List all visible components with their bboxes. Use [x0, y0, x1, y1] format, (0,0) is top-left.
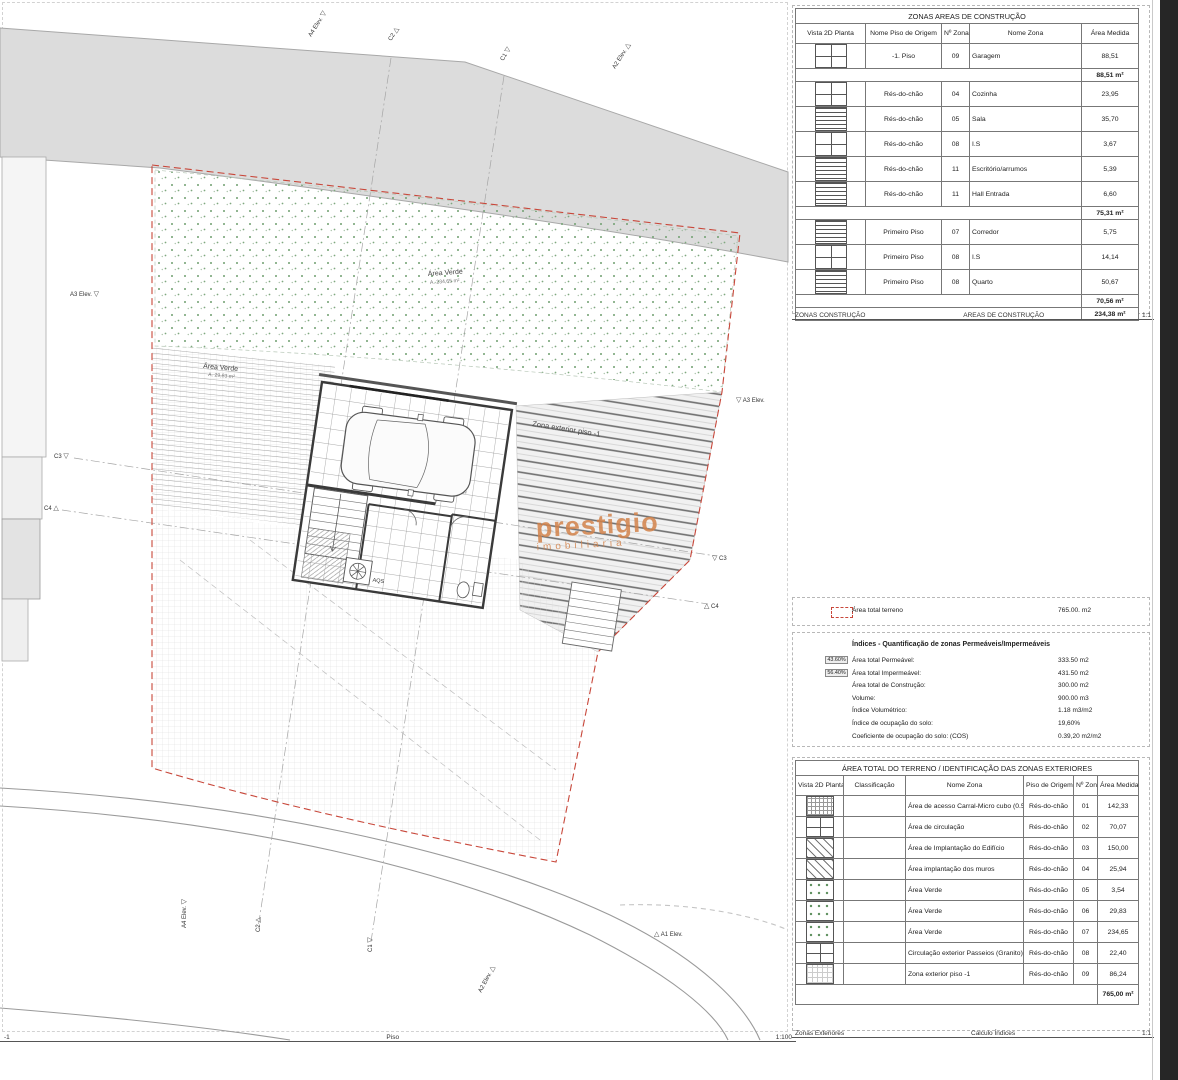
- zone-row: Área de Implantação do EdifícioRés-do-ch…: [796, 838, 1139, 859]
- building-plan: AQS Garagem A. 88,51 m²: [289, 374, 517, 608]
- hatch-swatch: [806, 943, 834, 963]
- hatch-swatch: [815, 220, 847, 244]
- exterior-footer-scale: 1:1: [1142, 1030, 1151, 1037]
- zone-row: Primeiro Piso08Quarto50,67: [796, 270, 1139, 295]
- drawing-footer-scale: 1:100: [776, 1034, 792, 1041]
- column-header: Nome Zona: [970, 24, 1082, 44]
- hatch-swatch: [815, 82, 847, 106]
- zone-row: Rés-do-chão11Hall Entrada6,60: [796, 182, 1139, 207]
- zone-row: Primeiro Piso07Corredor5,75: [796, 220, 1139, 245]
- index-row: Índice Volumétrico:1.18 m3/m2: [793, 705, 1149, 718]
- index-label: Área total Impermeável:: [852, 670, 921, 677]
- zone-row: Área de acesso Carral-Micro cubo (0.5x0.…: [796, 796, 1139, 817]
- hatch-swatch: [806, 796, 834, 816]
- terreno-box: Área total terreno 765.00. m2: [792, 597, 1150, 626]
- zone-row: Zona exterior piso -1Rés-do-chão0986,24: [796, 964, 1139, 985]
- column-header: Nome Piso de Origem: [866, 24, 942, 44]
- index-value: 19,60%: [1058, 720, 1080, 727]
- site-plan-area: AQS Garagem A. 88,51 m² Área Verde: [0, 0, 790, 1080]
- zone-row: Primeiro Piso08I.S14,14: [796, 245, 1139, 270]
- zone-row: Rés-do-chão04Cozinha23,95: [796, 82, 1139, 107]
- watermark-line1: prestigio: [535, 509, 659, 542]
- drawing-footer: -1 Piso 1:100: [0, 1030, 796, 1042]
- zone-row: Área VerdeRés-do-chão053,54: [796, 880, 1139, 901]
- subtotal-row: 75,31 m²: [796, 207, 1139, 220]
- column-header: Área Medida: [1082, 24, 1139, 44]
- hatch-swatch: [815, 270, 847, 294]
- hatch-swatch: [815, 44, 847, 68]
- hatch-swatch: [806, 880, 834, 900]
- drawing-footer-center: Piso: [386, 1034, 399, 1041]
- indices-rows: 43.60%Área total Permeável:333.50 m256.4…: [793, 655, 1149, 743]
- index-label: Coeficiente de ocupação do solo: (COS): [852, 733, 968, 740]
- car-icon: [338, 404, 478, 504]
- exterior-table-title: ÁREA TOTAL DO TERRENO / IDENTIFICAÇÃO DA…: [796, 761, 1139, 776]
- column-header: Classificação: [844, 776, 906, 796]
- terreno-legend-icon: [831, 607, 853, 618]
- construction-table-header: Vista 2D PlantaNome Piso de OrigemNº Zon…: [796, 24, 1139, 44]
- zone-row: Rés-do-chão11Escritório/arrumos5,39: [796, 157, 1139, 182]
- drawing-sheet: AQS Garagem A. 88,51 m² Área Verde: [0, 0, 1178, 1080]
- index-label: Área total de Construção:: [852, 682, 926, 689]
- terreno-value: 765.00. m2: [1058, 607, 1091, 614]
- index-row: Coeficiente de ocupação do solo: (COS)0.…: [793, 731, 1149, 744]
- watermark: prestigio imobiliaria: [535, 509, 660, 553]
- terreno-label: Área total terreno: [852, 607, 903, 614]
- percent-badge: 56.40%: [825, 669, 848, 677]
- subtotal-row: 88,51 m²: [796, 69, 1139, 82]
- zone-row: Rés-do-chão08I.S3,67: [796, 132, 1139, 157]
- subtotal-row: 70,56 m²: [796, 295, 1139, 308]
- zone-row: Área VerdeRés-do-chão0629,83: [796, 901, 1139, 922]
- hatch-swatch: [815, 157, 847, 181]
- total-row: 765,00 m²: [796, 985, 1139, 1005]
- indices-title: Índices - Quantificação de zonas Permeáv…: [852, 641, 1050, 648]
- zone-row: Rés-do-chão05Sala35,70: [796, 107, 1139, 132]
- index-row: Área total de Construção:300.00 m2: [793, 680, 1149, 693]
- hatch-swatch: [806, 838, 834, 858]
- hatch-swatch: [806, 922, 834, 942]
- column-header: Área Medida: [1098, 776, 1139, 796]
- hatch-swatch: [815, 107, 847, 131]
- index-label: Índice Volumétrico:: [852, 707, 907, 714]
- column-header: Nome Zona: [906, 776, 1024, 796]
- index-label: Índice de ocupação do solo:: [852, 720, 933, 727]
- index-value: 0.39,20 m2/m2: [1058, 733, 1101, 740]
- exterior-sheet-footer: Zonas Exteriores Calculo Índices 1:1: [792, 1026, 1154, 1038]
- viewer-edge-strip: [1160, 0, 1178, 1080]
- hatch-swatch: [815, 245, 847, 269]
- index-value: 1.18 m3/m2: [1058, 707, 1092, 714]
- construction-table-title: ZONAS AREAS DE CONSTRUÇÃO: [796, 9, 1139, 24]
- hatch-swatch: [806, 964, 834, 984]
- index-label: Área total Permeável:: [852, 657, 915, 664]
- column-header: Piso de Origem: [1024, 776, 1074, 796]
- exterior-table-header: Vista 2D PlantaClassificaçãoNome ZonaPis…: [796, 776, 1139, 796]
- index-row: 56.40%Área total Impermeável:431.50 m2: [793, 668, 1149, 681]
- construction-footer-center: AREAS DE CONSTRUÇÃO: [963, 312, 1044, 319]
- exterior-stairs: [562, 582, 621, 651]
- column-header: Nº Zona: [942, 24, 970, 44]
- hatch-swatch: [815, 182, 847, 206]
- index-value: 431.50 m2: [1058, 670, 1089, 677]
- construction-table: ZONAS AREAS DE CONSTRUÇÃO Vista 2D Plant…: [795, 8, 1139, 321]
- index-row: Índice de ocupação do solo:19,60%: [793, 718, 1149, 731]
- drawing-footer-left: -1: [4, 1034, 10, 1041]
- site-plan-svg: AQS Garagem A. 88,51 m² Área Verde: [0, 0, 790, 1080]
- zone-row: -1. Piso09Garagem88,51: [796, 44, 1139, 69]
- exterior-table-body: Área de acesso Carral-Micro cubo (0.5x0.…: [796, 796, 1139, 1005]
- index-value: 333.50 m2: [1058, 657, 1089, 664]
- hatch-swatch: [815, 132, 847, 156]
- index-value: 900.00 m3: [1058, 695, 1089, 702]
- exterior-footer-center: Calculo Índices: [971, 1030, 1015, 1037]
- construction-footer-scale: 1:1: [1142, 312, 1151, 319]
- aqs-unit: [343, 557, 372, 585]
- column-header: Nº Zona: [1074, 776, 1098, 796]
- hatch-swatch: [806, 817, 834, 837]
- indices-box: Índices - Quantificação de zonas Permeáv…: [792, 632, 1150, 747]
- neighbor-buildings: [2, 157, 46, 661]
- percent-badge: 43.60%: [825, 656, 848, 664]
- exterior-footer-left: Zonas Exteriores: [795, 1030, 844, 1037]
- construction-table-body: -1. Piso09Garagem88,5188,51 m²Rés-do-chã…: [796, 44, 1139, 321]
- column-header: Vista 2D Planta: [796, 24, 866, 44]
- index-row: 43.60%Área total Permeável:333.50 m2: [793, 655, 1149, 668]
- exterior-table: ÁREA TOTAL DO TERRENO / IDENTIFICAÇÃO DA…: [795, 760, 1139, 1005]
- zone-row: Área VerdeRés-do-chão07234,65: [796, 922, 1139, 943]
- zone-row: Área de circulaçãoRés-do-chão0270,07: [796, 817, 1139, 838]
- construction-footer-left: ZONAS CONSTRUÇÃO: [795, 312, 865, 319]
- column-header: Vista 2D Planta: [796, 776, 844, 796]
- page-edge-line: [1152, 0, 1153, 1080]
- zone-row: Circulação exterior Passeios (Granito)Ré…: [796, 943, 1139, 964]
- hatch-swatch: [806, 859, 834, 879]
- zone-row: Área implantação dos murosRés-do-chão042…: [796, 859, 1139, 880]
- construction-sheet-footer: ZONAS CONSTRUÇÃO AREAS DE CONSTRUÇÃO 1:1: [792, 308, 1154, 320]
- hatch-swatch: [806, 901, 834, 921]
- index-value: 300.00 m2: [1058, 682, 1089, 689]
- index-label: Volume:: [852, 695, 876, 702]
- index-row: Volume:900.00 m3: [793, 693, 1149, 706]
